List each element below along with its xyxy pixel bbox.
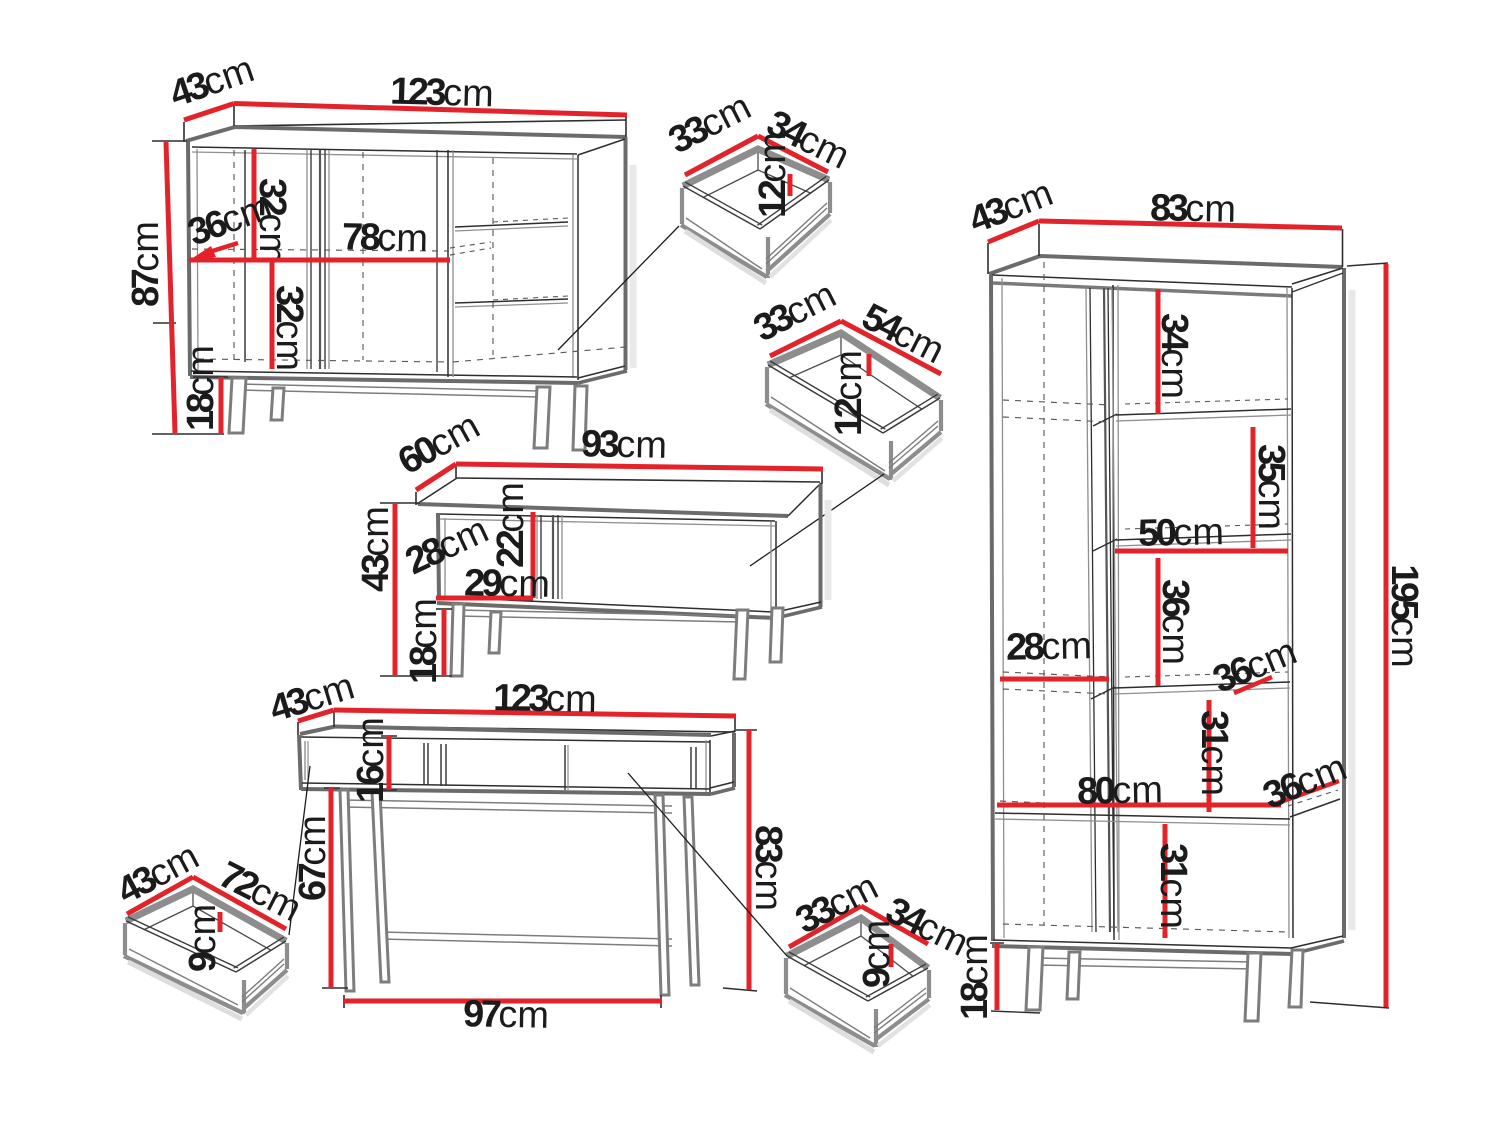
svg-text:12cm: 12cm bbox=[828, 350, 870, 436]
svg-text:43cm: 43cm bbox=[355, 506, 397, 592]
svg-text:97cm: 97cm bbox=[463, 993, 550, 1036]
svg-text:123cm: 123cm bbox=[390, 71, 495, 116]
svg-text:31cm: 31cm bbox=[1193, 710, 1235, 796]
svg-text:18cm: 18cm bbox=[180, 345, 222, 431]
svg-text:9cm: 9cm bbox=[182, 904, 224, 972]
svg-text:36cm: 36cm bbox=[1154, 579, 1196, 665]
svg-text:9cm: 9cm bbox=[856, 920, 898, 988]
svg-text:34cm: 34cm bbox=[1153, 313, 1195, 399]
svg-text:195cm: 195cm bbox=[1383, 564, 1425, 668]
svg-text:18cm: 18cm bbox=[954, 934, 996, 1020]
svg-text:78cm: 78cm bbox=[342, 216, 429, 259]
svg-text:32cm: 32cm bbox=[268, 285, 310, 371]
svg-text:18cm: 18cm bbox=[403, 598, 445, 684]
svg-text:29cm: 29cm bbox=[464, 562, 551, 605]
svg-text:87cm: 87cm bbox=[125, 221, 167, 307]
svg-text:83cm: 83cm bbox=[1150, 187, 1237, 230]
svg-text:16cm: 16cm bbox=[350, 717, 392, 803]
svg-text:22cm: 22cm bbox=[490, 482, 532, 568]
svg-text:50cm: 50cm bbox=[1138, 511, 1225, 554]
svg-text:12cm: 12cm bbox=[752, 132, 794, 218]
svg-text:35cm: 35cm bbox=[1250, 444, 1292, 530]
svg-text:123cm: 123cm bbox=[493, 677, 597, 721]
svg-text:80cm: 80cm bbox=[1077, 769, 1164, 812]
svg-text:28cm: 28cm bbox=[1006, 625, 1093, 668]
svg-text:31cm: 31cm bbox=[1152, 843, 1194, 929]
svg-text:83cm: 83cm bbox=[747, 825, 789, 911]
svg-text:93cm: 93cm bbox=[581, 423, 668, 466]
